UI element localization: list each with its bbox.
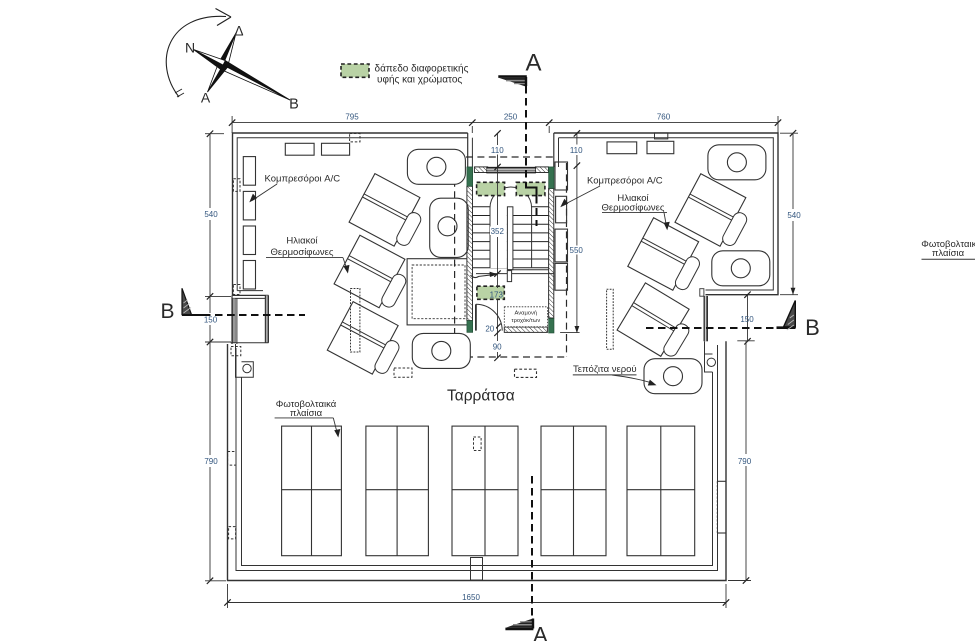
svg-text:Τεπόζιτα νερού: Τεπόζιτα νερού bbox=[573, 364, 637, 375]
svg-text:20: 20 bbox=[485, 325, 494, 334]
svg-text:1650: 1650 bbox=[462, 593, 480, 602]
svg-text:90: 90 bbox=[493, 342, 502, 351]
svg-text:Κομπρεσόροι A/C: Κομπρεσόροι A/C bbox=[587, 176, 663, 187]
svg-text:760: 760 bbox=[657, 113, 671, 122]
svg-text:πλαίσια: πλαίσια bbox=[932, 248, 965, 259]
svg-text:B: B bbox=[289, 97, 299, 113]
svg-text:110: 110 bbox=[491, 146, 504, 155]
svg-text:Θερμοσίφωνες: Θερμοσίφωνες bbox=[602, 203, 665, 214]
svg-text:173: 173 bbox=[490, 290, 504, 299]
svg-text:540: 540 bbox=[787, 211, 801, 220]
svg-text:B: B bbox=[805, 315, 820, 340]
svg-text:N: N bbox=[185, 40, 195, 56]
svg-text:250: 250 bbox=[504, 113, 518, 122]
svg-text:A: A bbox=[201, 90, 211, 106]
svg-text:Ηλιακοί: Ηλιακοί bbox=[286, 236, 318, 247]
svg-text:B: B bbox=[160, 300, 174, 323]
svg-text:352: 352 bbox=[491, 227, 505, 236]
svg-text:A: A bbox=[533, 623, 548, 641]
svg-text:Αναμονή: Αναμονή bbox=[514, 310, 537, 317]
svg-text:Ταρράτσα: Ταρράτσα bbox=[447, 388, 515, 405]
svg-text:A: A bbox=[525, 50, 541, 77]
svg-text:110: 110 bbox=[570, 146, 583, 155]
svg-text:550: 550 bbox=[570, 246, 584, 255]
svg-text:150: 150 bbox=[740, 315, 754, 324]
svg-text:795: 795 bbox=[345, 113, 359, 122]
svg-text:υφής και χρώματος: υφής και χρώματος bbox=[377, 74, 462, 86]
svg-text:790: 790 bbox=[738, 457, 752, 466]
svg-text:δάπεδο διαφορετικής: δάπεδο διαφορετικής bbox=[375, 63, 469, 75]
svg-text:150: 150 bbox=[204, 316, 218, 325]
svg-text:πλαίσια: πλαίσια bbox=[290, 408, 323, 419]
svg-text:τροχόκ/των: τροχόκ/των bbox=[511, 317, 540, 324]
svg-text:Θερμοσίφωνες: Θερμοσίφωνες bbox=[271, 247, 334, 258]
svg-text:540: 540 bbox=[204, 210, 218, 219]
svg-text:Δ: Δ bbox=[234, 24, 243, 39]
svg-text:Κομπρεσόροι A/C: Κομπρεσόροι A/C bbox=[265, 174, 341, 185]
svg-text:790: 790 bbox=[204, 457, 218, 466]
